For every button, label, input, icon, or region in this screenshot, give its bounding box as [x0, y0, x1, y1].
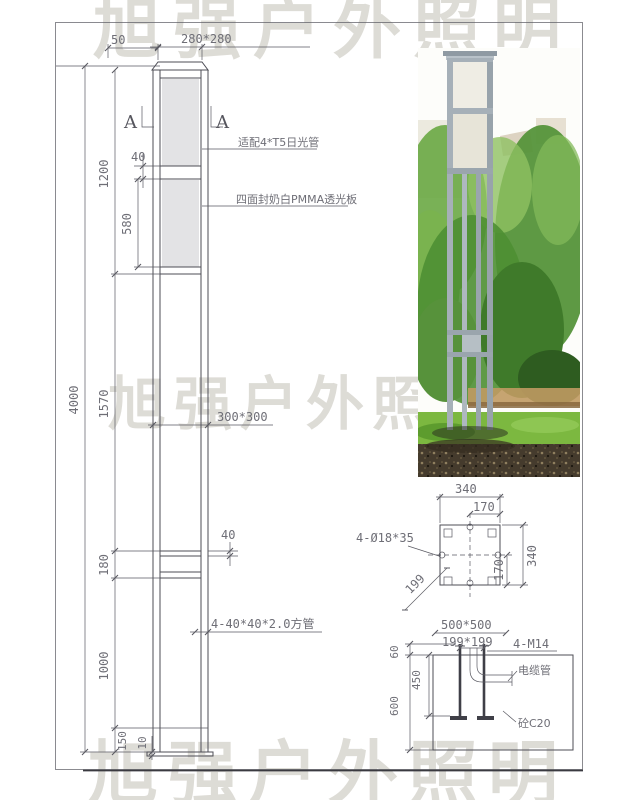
annotation-lamp-tubes: 适配4*T5日光管 — [238, 135, 319, 149]
dim-cap-offset: 50 — [111, 33, 125, 47]
dim-footing-size: 500*500 — [441, 618, 492, 632]
anchor-plate — [450, 716, 467, 720]
dim-panel-height: 580 — [120, 213, 134, 235]
photo-planter-edge — [468, 402, 580, 408]
dim-panel-gap: 40 — [131, 150, 145, 164]
dim-bolt-spacing: 199*199 — [442, 635, 493, 649]
dim-cap-size: 280*280 — [181, 32, 232, 46]
label-bolt-holes: 4-Ø18*35 — [356, 531, 414, 545]
dim-plate-width-top: 340 — [455, 482, 477, 496]
leg-section — [488, 529, 496, 537]
dim-embed-depth: 450 — [410, 670, 423, 690]
dim-pole-size: 300*300 — [217, 410, 268, 424]
anchor-plate — [477, 716, 494, 720]
dim-rail-width: 40 — [221, 528, 235, 542]
dim-mid-section: 1570 — [97, 390, 111, 419]
dim-bolt-projection: 60 — [388, 645, 401, 658]
pmma-panel-lower — [162, 180, 199, 267]
dim-tube-spec: 4-40*40*2.0方管 — [211, 616, 314, 631]
drawing-page: 旭强户外照明 旭强户外照明 旭强户外照明 50 280*280 40 1200 … — [0, 0, 640, 800]
cable-conduit-pipe — [470, 648, 512, 686]
photo-mulch-shadow — [425, 439, 515, 453]
photo-foliage — [400, 125, 591, 406]
annotation-pmma-panel: 四面封奶白PMMA透光板 — [236, 192, 357, 206]
section-mark-a-right: A — [215, 112, 230, 133]
annotation-cable-conduit: 电缆管 — [518, 663, 551, 677]
plan-dimension-ticks — [402, 494, 526, 610]
leg-section — [444, 529, 452, 537]
dim-plate-width-right: 340 — [525, 545, 539, 567]
dim-diagonal: 199 — [402, 571, 427, 596]
plan-detail: 340 170 340 170 4-Ø18*35 199 — [356, 482, 539, 610]
dim-lantern-height: 1200 — [97, 160, 111, 189]
dim-plate-thickness: 10 — [136, 736, 149, 749]
leg-section — [444, 577, 452, 585]
lamp-post-technical-drawing: 旭强户外照明 旭强户外照明 旭强户外照明 50 280*280 40 1200 … — [0, 0, 640, 800]
dim-plate-half-top: 170 — [473, 500, 495, 514]
product-photo — [400, 48, 591, 477]
dim-plate-half-right: 170 — [492, 559, 506, 581]
photo-grass-shade — [511, 417, 579, 433]
centerlines — [428, 513, 512, 597]
section-mark-a-left: A — [123, 112, 138, 133]
dim-lower-section: 1000 — [97, 652, 111, 681]
dim-footing-depth: 600 — [388, 696, 401, 716]
dim-base-section: 150 — [116, 731, 129, 751]
annotation-concrete-grade: 砼C20 — [518, 717, 551, 730]
dim-total-height: 4000 — [67, 386, 81, 415]
label-anchor-bolts: 4-M14 — [513, 637, 549, 651]
pmma-panel-upper — [162, 79, 199, 166]
dim-lower-band: 180 — [97, 554, 111, 576]
